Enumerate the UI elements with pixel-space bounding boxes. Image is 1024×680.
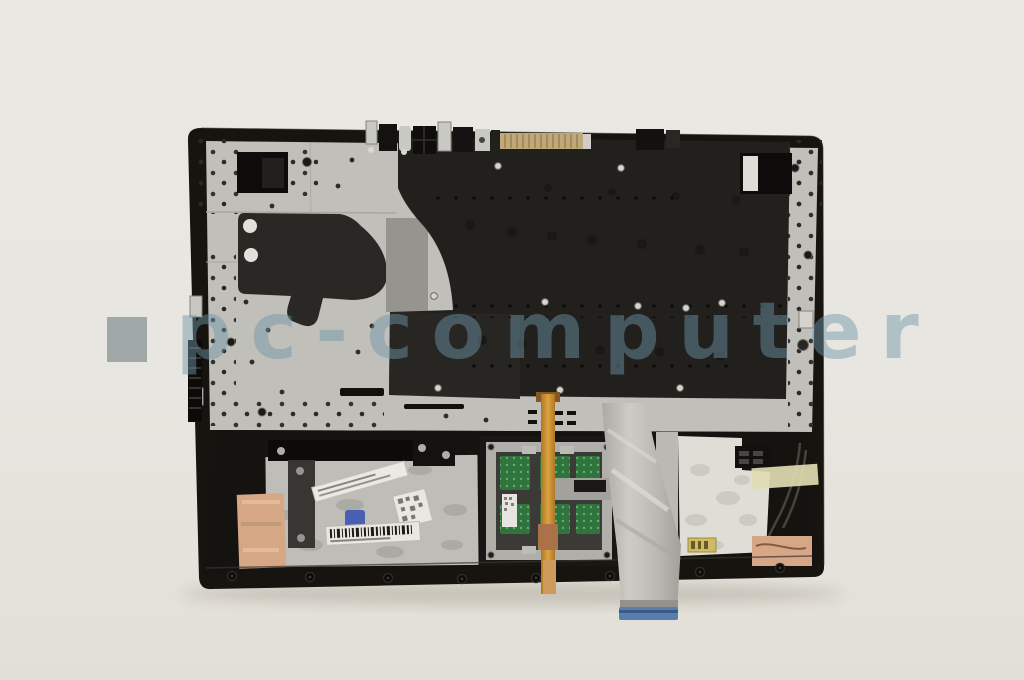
photo-stage: pc-computer [0,0,1024,680]
vignette [0,0,1024,680]
laptop-part-photo [0,0,1024,680]
